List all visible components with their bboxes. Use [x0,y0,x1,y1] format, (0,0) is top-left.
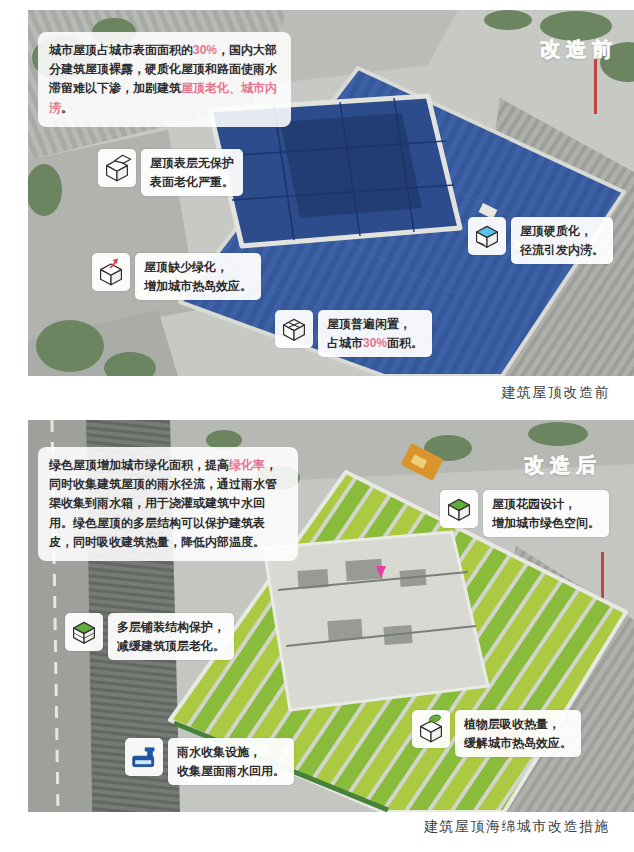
callout-line: 缓解城市热岛效应。 [464,736,572,750]
callout-line: 多层铺装结构保护， [117,620,225,634]
callout-highlight-30pct: 30% [363,336,387,350]
layered-paving-cube-icon [65,613,103,651]
plant-layer-leaf-cube-icon [412,710,450,748]
before-caption: 建筑屋顶改造前 [0,384,634,402]
intro-text-part: 绿色屋顶增加城市绿化面积，提高 [49,458,229,472]
callout-roof-garden: 屋顶花园设计，增加城市绿色空间。 [440,490,609,537]
callout-line: 屋顶普遍闲置， [327,317,411,331]
intro-text-part: 城市屋顶占城市表面面积的 [49,43,193,57]
callout-line: 屋顶花园设计， [492,497,576,511]
after-photo-section: 绿色屋顶增加城市绿化面积，提高绿化率，同时收集建筑屋顶的雨水径流，通过雨水管渠收… [28,420,634,812]
before-intro-text: 城市屋顶占城市表面面积的30%，国内大部分建筑屋顶裸露，硬质化屋顶和路面使雨水滞… [38,32,291,127]
callout-line: 表面老化严重。 [150,175,234,189]
page: 城市屋顶占城市表面面积的30%，国内大部分建筑屋顶裸露，硬质化屋顶和路面使雨水滞… [0,0,634,852]
callout-line: 雨水收集设施， [177,745,261,759]
callout-hardened-roof: 屋顶硬质化，径流引发内涝。 [468,217,613,264]
before-label: 改造前 [540,36,618,63]
heat-island-arrow-cube-icon [92,253,130,291]
rainwater-tank-icon [125,738,163,776]
green-roof-cube-icon [440,490,478,528]
callout-line: 占城市 [327,336,363,350]
callout-idle-roof: 屋顶普遍闲置，占城市30%面积。 [275,310,432,357]
after-intro-text: 绿色屋顶增加城市绿化面积，提高绿化率，同时收集建筑屋顶的雨水径流，通过雨水管渠收… [38,447,298,561]
callout-layered-paving: 多层铺装结构保护，减缓建筑顶层老化。 [65,613,234,660]
callout-line: 增加城市绿色空间。 [492,516,600,530]
intro-text-part: 。 [61,101,73,115]
idle-roof-crossed-cube-icon [275,310,313,348]
callout-line: 屋顶缺少绿化， [144,260,228,274]
intro-highlight-30pct: 30% [193,43,217,57]
before-photo-section: 城市屋顶占城市表面面积的30%，国内大部分建筑屋顶裸露，硬质化屋顶和路面使雨水滞… [28,10,634,376]
callout-line: 收集屋面雨水回用。 [177,764,285,778]
intro-highlight-green-ratio: 绿化率 [229,458,265,472]
peeled-surface-cube-icon [98,149,136,187]
callout-line: 屋顶表层无保护 [150,156,234,170]
callout-line: 增加城市热岛效应。 [144,279,252,293]
callout-no-greenery: 屋顶缺少绿化，增加城市热岛效应。 [92,253,261,300]
callout-roof-surface: 屋顶表层无保护表面老化严重。 [98,149,243,196]
callout-line: 径流引发内涝。 [520,243,604,257]
callout-line: 屋顶硬质化， [520,224,592,238]
callout-plant-layer: 植物层吸收热量，缓解城市热岛效应。 [412,710,581,757]
callout-line: 植物层吸收热量， [464,717,560,731]
callout-rainwater-collection: 雨水收集设施，收集屋面雨水回用。 [125,738,294,785]
callout-line: 面积。 [387,336,423,350]
after-label: 改造后 [524,452,602,479]
hardened-roof-water-cube-icon [468,217,506,255]
callout-line: 减缓建筑顶层老化。 [117,639,225,653]
after-caption: 建筑屋顶海绵城市改造措施 [0,818,634,836]
